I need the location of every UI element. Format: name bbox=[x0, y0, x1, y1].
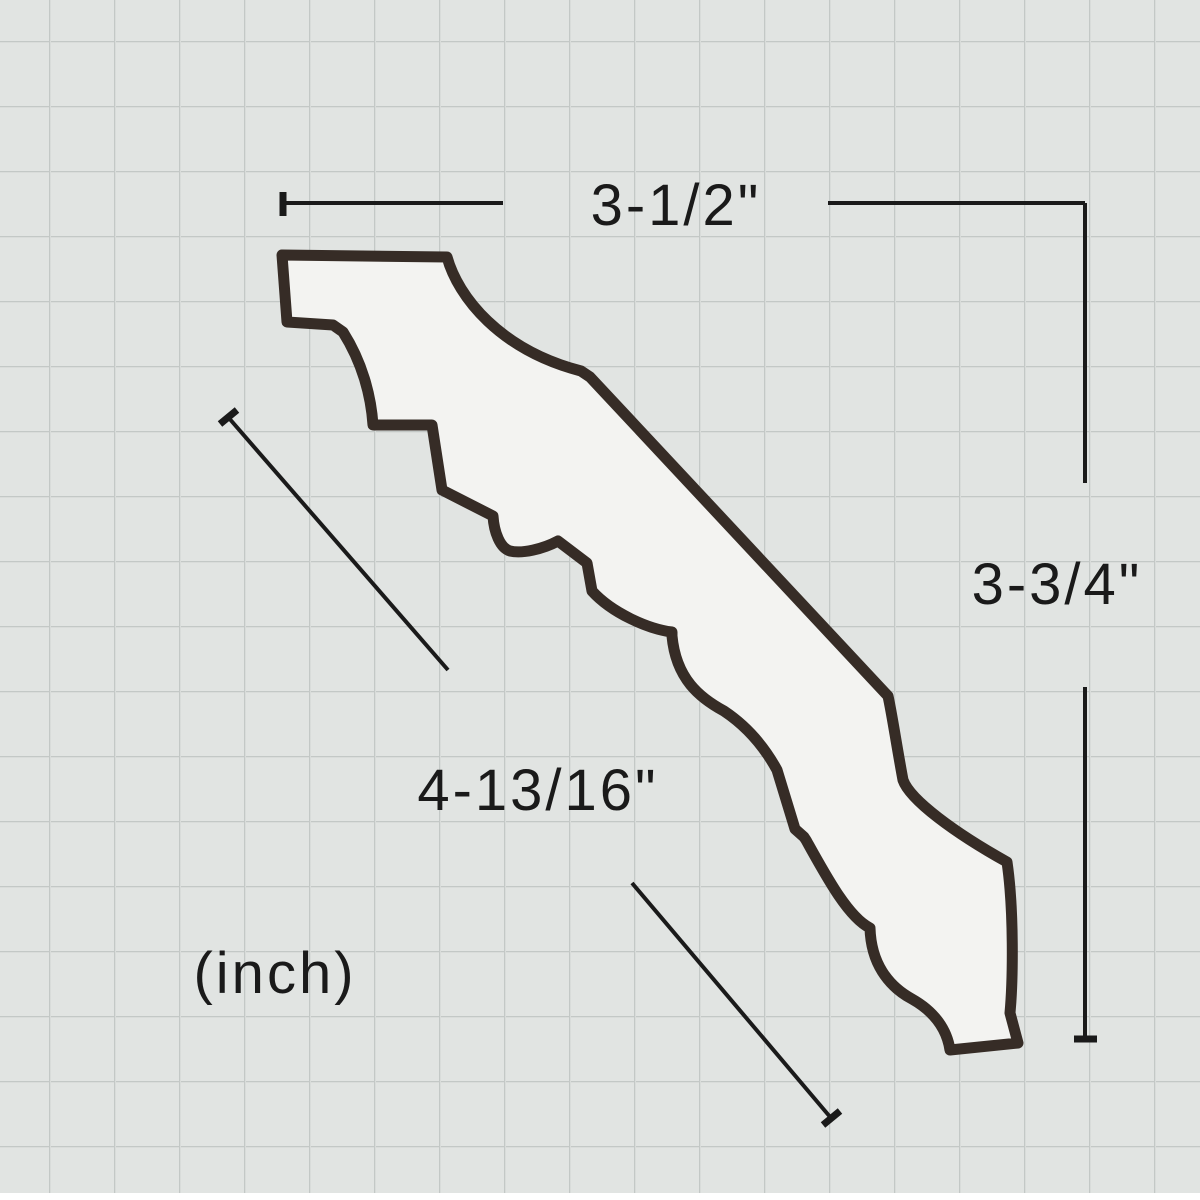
diagonal-dimension-line-lower-segment bbox=[632, 883, 831, 1118]
right-height-dimension-label: 3-3/4" bbox=[972, 552, 1143, 617]
molding-profile-shape bbox=[282, 255, 1018, 1050]
canvas-bottom-edge bbox=[0, 1193, 1200, 1200]
grid-drawing-canvas: 3-1/2" 3-3/4" 4-13/16" (inch) bbox=[0, 0, 1200, 1200]
diagonal-face-dimension-label: 4-13/16" bbox=[417, 758, 658, 823]
diagonal-dimension-line-upper-segment bbox=[228, 417, 448, 670]
top-width-dimension-label: 3-1/2" bbox=[591, 173, 762, 238]
molding-technical-drawing: 3-1/2" 3-3/4" 4-13/16" (inch) bbox=[0, 0, 1200, 1200]
unit-note-label: (inch) bbox=[193, 941, 356, 1006]
